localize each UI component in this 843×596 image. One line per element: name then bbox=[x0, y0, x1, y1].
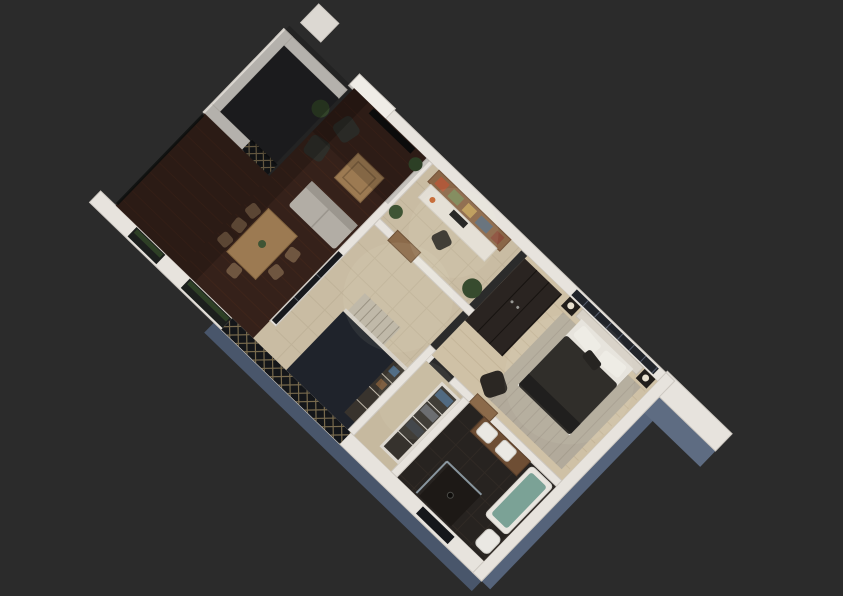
floorplan-svg bbox=[0, 0, 843, 596]
floorplan-viewport bbox=[0, 0, 843, 596]
